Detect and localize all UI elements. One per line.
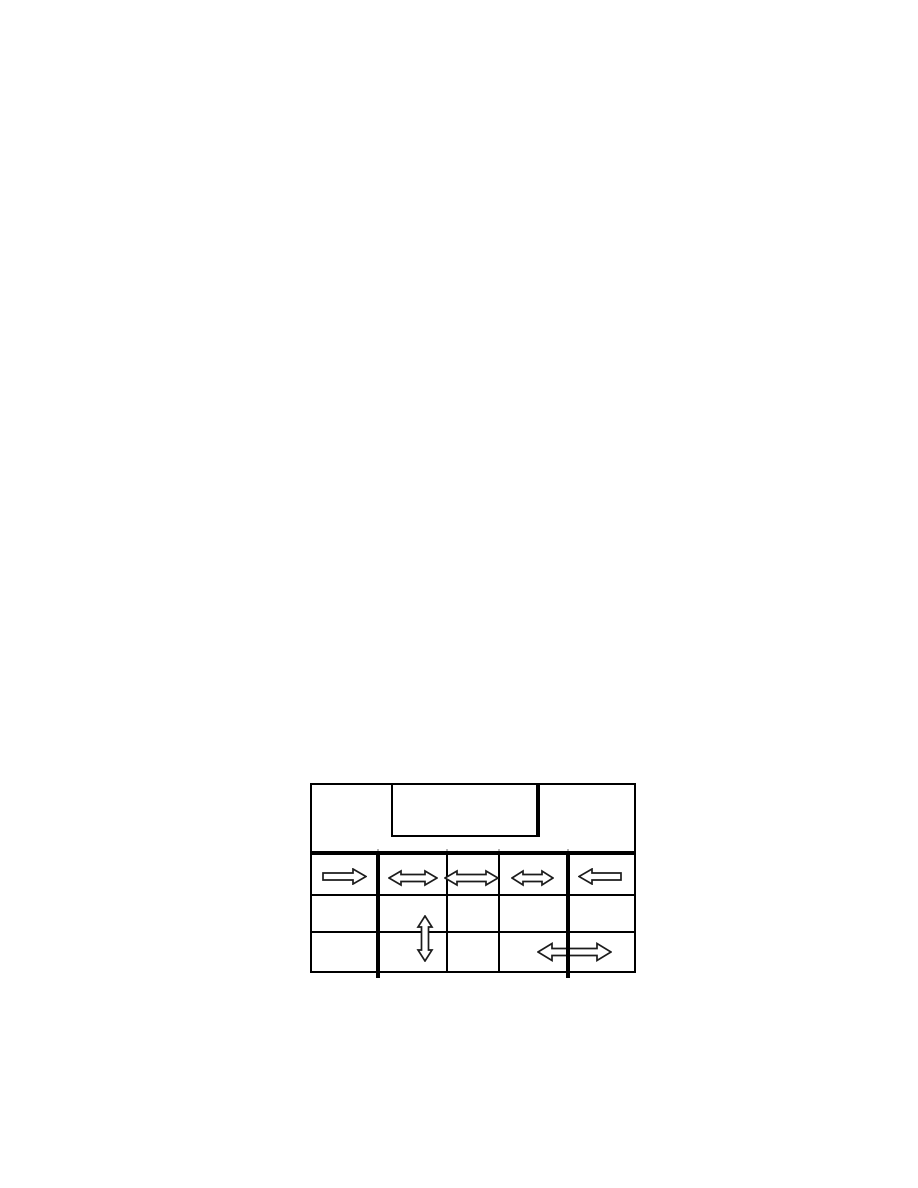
arrow-left-icon bbox=[578, 868, 622, 885]
arrow-right-icon bbox=[322, 868, 367, 885]
grid-row-divider-1 bbox=[310, 894, 636, 896]
arrow-left-right-icon bbox=[511, 869, 554, 887]
arrow-left-right-icon bbox=[537, 942, 612, 962]
panel-diagram-figure bbox=[310, 783, 637, 983]
grid-row-divider-2 bbox=[310, 931, 636, 933]
display-window-box bbox=[391, 783, 540, 837]
arrow-left-right-icon bbox=[444, 869, 499, 887]
grid-column-divider-4-thick bbox=[566, 853, 570, 978]
grid-column-divider-1-thick bbox=[376, 853, 380, 978]
arrow-up-down-icon bbox=[416, 915, 434, 962]
document-page bbox=[0, 0, 918, 1188]
arrow-left-right-icon bbox=[388, 869, 438, 887]
